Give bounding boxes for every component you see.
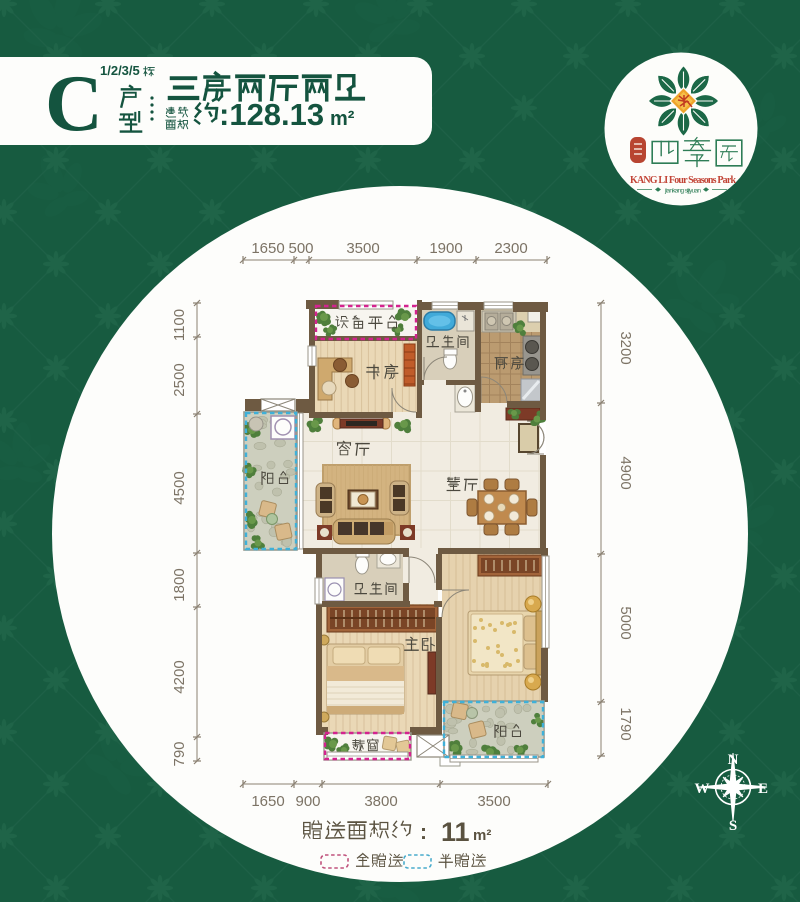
svg-text:C: C: [45, 60, 103, 148]
svg-text:m²: m²: [330, 108, 355, 130]
svg-text:500: 500: [288, 240, 313, 257]
svg-text:1/2/3/5: 1/2/3/5: [100, 63, 140, 78]
svg-text:3500: 3500: [346, 240, 379, 257]
svg-text:jiankang sijiyuan: jiankang sijiyuan: [664, 187, 701, 194]
svg-text:1790: 1790: [617, 707, 634, 740]
svg-text:900: 900: [295, 793, 320, 810]
svg-text:1650: 1650: [251, 240, 284, 257]
svg-text:4900: 4900: [617, 456, 634, 489]
svg-text::: :: [420, 821, 427, 844]
svg-text:E: E: [758, 781, 768, 797]
svg-text:W: W: [695, 781, 710, 797]
svg-text:N: N: [728, 752, 739, 768]
svg-text:2500: 2500: [171, 363, 188, 396]
svg-text:1100: 1100: [171, 309, 188, 341]
svg-text:4500: 4500: [171, 471, 188, 504]
svg-text:1900: 1900: [429, 240, 462, 257]
svg-text:4200: 4200: [171, 660, 188, 693]
svg-text:2300: 2300: [494, 240, 527, 257]
svg-text:790: 790: [171, 741, 188, 766]
svg-text:5000: 5000: [617, 606, 634, 639]
svg-text:1650: 1650: [251, 793, 284, 810]
svg-text:m²: m²: [473, 827, 491, 844]
svg-text:KANG LI Four Seasons Park: KANG LI Four Seasons Park: [630, 175, 736, 186]
svg-text:3800: 3800: [364, 793, 397, 810]
svg-text:1800: 1800: [171, 568, 188, 601]
svg-text:11: 11: [441, 817, 470, 847]
svg-text::128.13: :128.13: [219, 97, 324, 132]
svg-text:S: S: [729, 818, 737, 834]
svg-text:3500: 3500: [477, 793, 510, 810]
svg-text:3200: 3200: [617, 331, 634, 364]
